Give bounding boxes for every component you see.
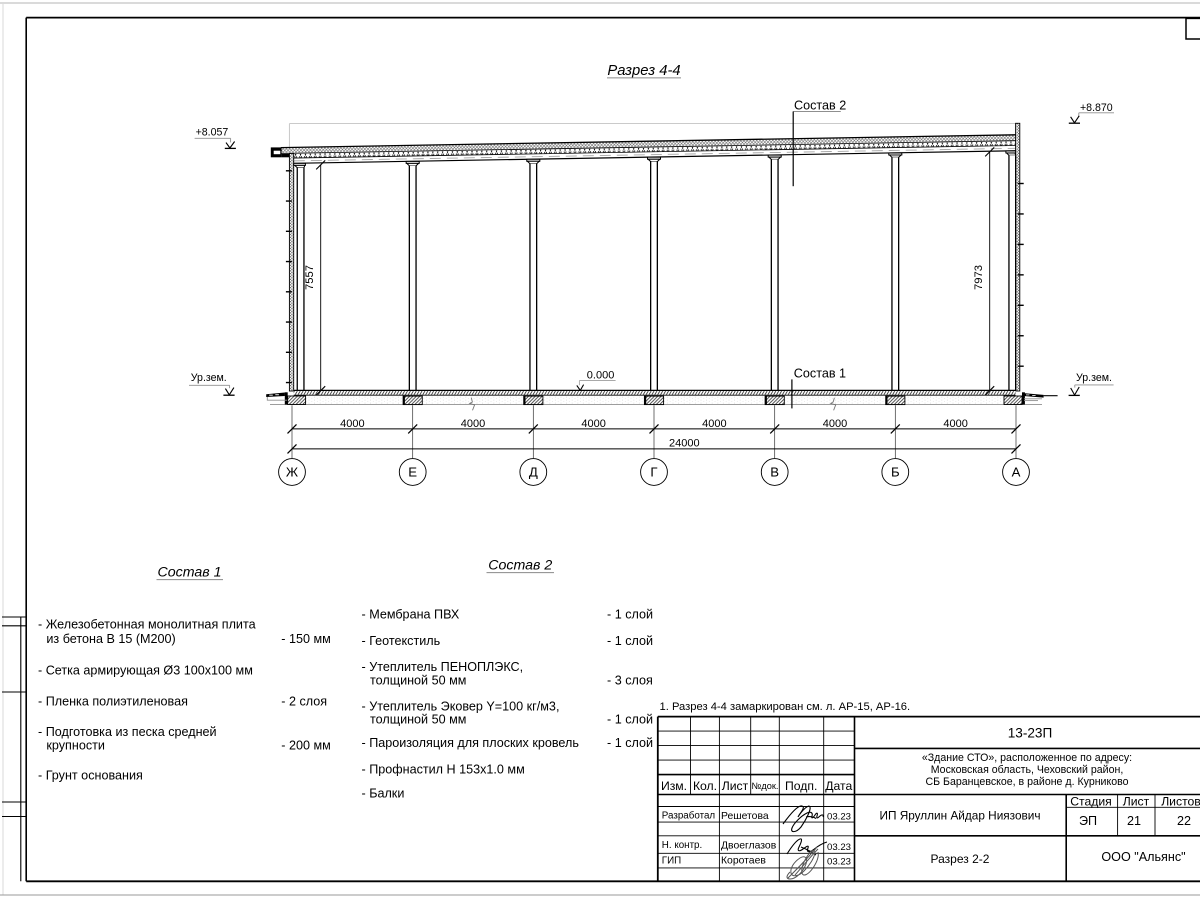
svg-text:Е: Е xyxy=(408,465,417,480)
svg-text:Разработал: Разработал xyxy=(662,811,716,822)
svg-text:4000: 4000 xyxy=(581,418,605,430)
svg-text:22: 22 xyxy=(1177,814,1191,828)
svg-text:0.000: 0.000 xyxy=(587,369,615,381)
svg-text:03.23: 03.23 xyxy=(827,857,851,868)
svg-text:«Здание СТО», расположенное по: «Здание СТО», расположенное по адресу: xyxy=(922,752,1132,764)
svg-text:- 200 мм: - 200 мм xyxy=(281,739,331,753)
svg-text:крупности: крупности xyxy=(46,739,105,753)
svg-text:03.23: 03.23 xyxy=(827,811,851,822)
svg-text:7973: 7973 xyxy=(973,265,985,290)
svg-text:ООО "Альянс": ООО "Альянс" xyxy=(1101,850,1185,864)
svg-text:- Грунт основания: - Грунт основания xyxy=(38,769,143,783)
svg-text:24000: 24000 xyxy=(669,438,700,450)
svg-text:4000: 4000 xyxy=(823,418,847,430)
svg-text:- 2 слоя: - 2 слоя xyxy=(281,695,327,709)
svg-text:- Утеплитель ПЕНОПЛЭКС,: - Утеплитель ПЕНОПЛЭКС, xyxy=(362,660,524,674)
svg-text:- 1 слой: - 1 слой xyxy=(607,607,653,621)
svg-text:ГИП: ГИП xyxy=(662,855,681,866)
svg-text:ЭП: ЭП xyxy=(1079,814,1097,828)
svg-text:- Балки: - Балки xyxy=(362,787,405,801)
svg-text:- 1 слой: - 1 слой xyxy=(607,712,653,726)
svg-text:- 1 слой: - 1 слой xyxy=(607,634,653,648)
svg-text:толщиной 50 мм: толщиной 50 мм xyxy=(370,673,466,687)
svg-text:- Железобетонная монолитная п: - Железобетонная монолитная плита xyxy=(38,617,256,631)
svg-text:- Подготовка из песка средней: - Подготовка из песка средней xyxy=(38,725,217,739)
svg-text:Листов: Листов xyxy=(1161,794,1200,808)
svg-text:- Пленка полиэтиленовая: - Пленка полиэтиленовая xyxy=(38,695,188,709)
svg-text:- Профнастил Н 153х1.0 мм: - Профнастил Н 153х1.0 мм xyxy=(362,762,525,776)
svg-text:Ур.зем.: Ур.зем. xyxy=(191,372,227,384)
svg-text:Коротаев: Коротаев xyxy=(721,856,766,867)
svg-text:Состав 2: Состав 2 xyxy=(488,557,552,573)
svg-text:- Пароизоляция для плоских кро: - Пароизоляция для плоских кровель xyxy=(362,736,580,750)
svg-text:Н. контр.: Н. контр. xyxy=(662,840,702,851)
svg-text:+8.870: +8.870 xyxy=(1080,102,1113,114)
svg-text:+8.057: +8.057 xyxy=(196,127,229,139)
svg-text:Дата: Дата xyxy=(825,779,852,793)
svg-text:- 150 мм: - 150 мм xyxy=(281,632,331,646)
svg-text:Разрез 4-4: Разрез 4-4 xyxy=(607,63,680,79)
svg-text:№док.: №док. xyxy=(752,781,779,791)
svg-text:Состав 1: Состав 1 xyxy=(157,564,221,580)
svg-text:Изм.: Изм. xyxy=(661,779,687,793)
svg-text:Состав 1: Состав 1 xyxy=(794,367,846,381)
svg-text:Стадия: Стадия xyxy=(1070,794,1112,808)
svg-text:Состав 2: Состав 2 xyxy=(794,98,846,112)
svg-text:Кол.: Кол. xyxy=(693,779,717,793)
svg-text:7557: 7557 xyxy=(304,265,316,290)
svg-text:из бетона В 15 (М200): из бетона В 15 (М200) xyxy=(46,632,175,646)
svg-text:Подп.: Подп. xyxy=(785,779,817,793)
svg-text:толщиной 50 мм: толщиной 50 мм xyxy=(370,712,466,726)
svg-text:Двоеглазов: Двоеглазов xyxy=(721,841,777,852)
svg-text:Решетова: Решетова xyxy=(721,811,769,822)
svg-text:Разрез 2-2: Разрез 2-2 xyxy=(931,852,990,866)
svg-text:СБ Баранцевское, в районе д. К: СБ Баранцевское, в районе д. Курниково xyxy=(925,776,1128,788)
svg-text:13-23П: 13-23П xyxy=(1008,726,1053,741)
svg-text:В: В xyxy=(770,465,779,480)
svg-text:- 1 слой: - 1 слой xyxy=(607,736,653,750)
svg-text:Б: Б xyxy=(891,465,900,480)
svg-text:- Геотекстиль: - Геотекстиль xyxy=(362,634,441,648)
svg-text:- 3 слоя: - 3 слоя xyxy=(607,673,653,687)
svg-text:4000: 4000 xyxy=(461,418,485,430)
svg-text:- Утеплитель Эковер Y=100 кг/м: - Утеплитель Эковер Y=100 кг/м3, xyxy=(362,699,560,713)
svg-text:ИП Яруллин Айдар Ниязович: ИП Яруллин Айдар Ниязович xyxy=(879,809,1040,823)
svg-text:Д: Д xyxy=(529,465,538,480)
svg-text:1. Разрез 4-4 замаркирован см.: 1. Разрез 4-4 замаркирован см. л. АР-15,… xyxy=(660,701,911,713)
svg-text:Ж: Ж xyxy=(286,465,298,480)
svg-text:21: 21 xyxy=(1127,814,1141,828)
svg-text:А: А xyxy=(1012,465,1021,480)
svg-text:Лист: Лист xyxy=(1123,794,1150,808)
svg-text:03.23: 03.23 xyxy=(827,842,851,853)
svg-text:Лист: Лист xyxy=(722,779,749,793)
svg-text:Г: Г xyxy=(650,465,657,480)
svg-text:4000: 4000 xyxy=(340,418,364,430)
svg-text:4000: 4000 xyxy=(943,418,967,430)
svg-text:- Сетка армирующая Ø3 100х100: - Сетка армирующая Ø3 100х100 мм xyxy=(38,664,253,678)
svg-text:4000: 4000 xyxy=(702,418,726,430)
svg-text:Московская область, Чеховский: Московская область, Чеховский район, xyxy=(931,764,1124,776)
svg-text:Ур.зем.: Ур.зем. xyxy=(1076,372,1112,384)
svg-text:- Мембрана ПВХ: - Мембрана ПВХ xyxy=(362,607,460,621)
